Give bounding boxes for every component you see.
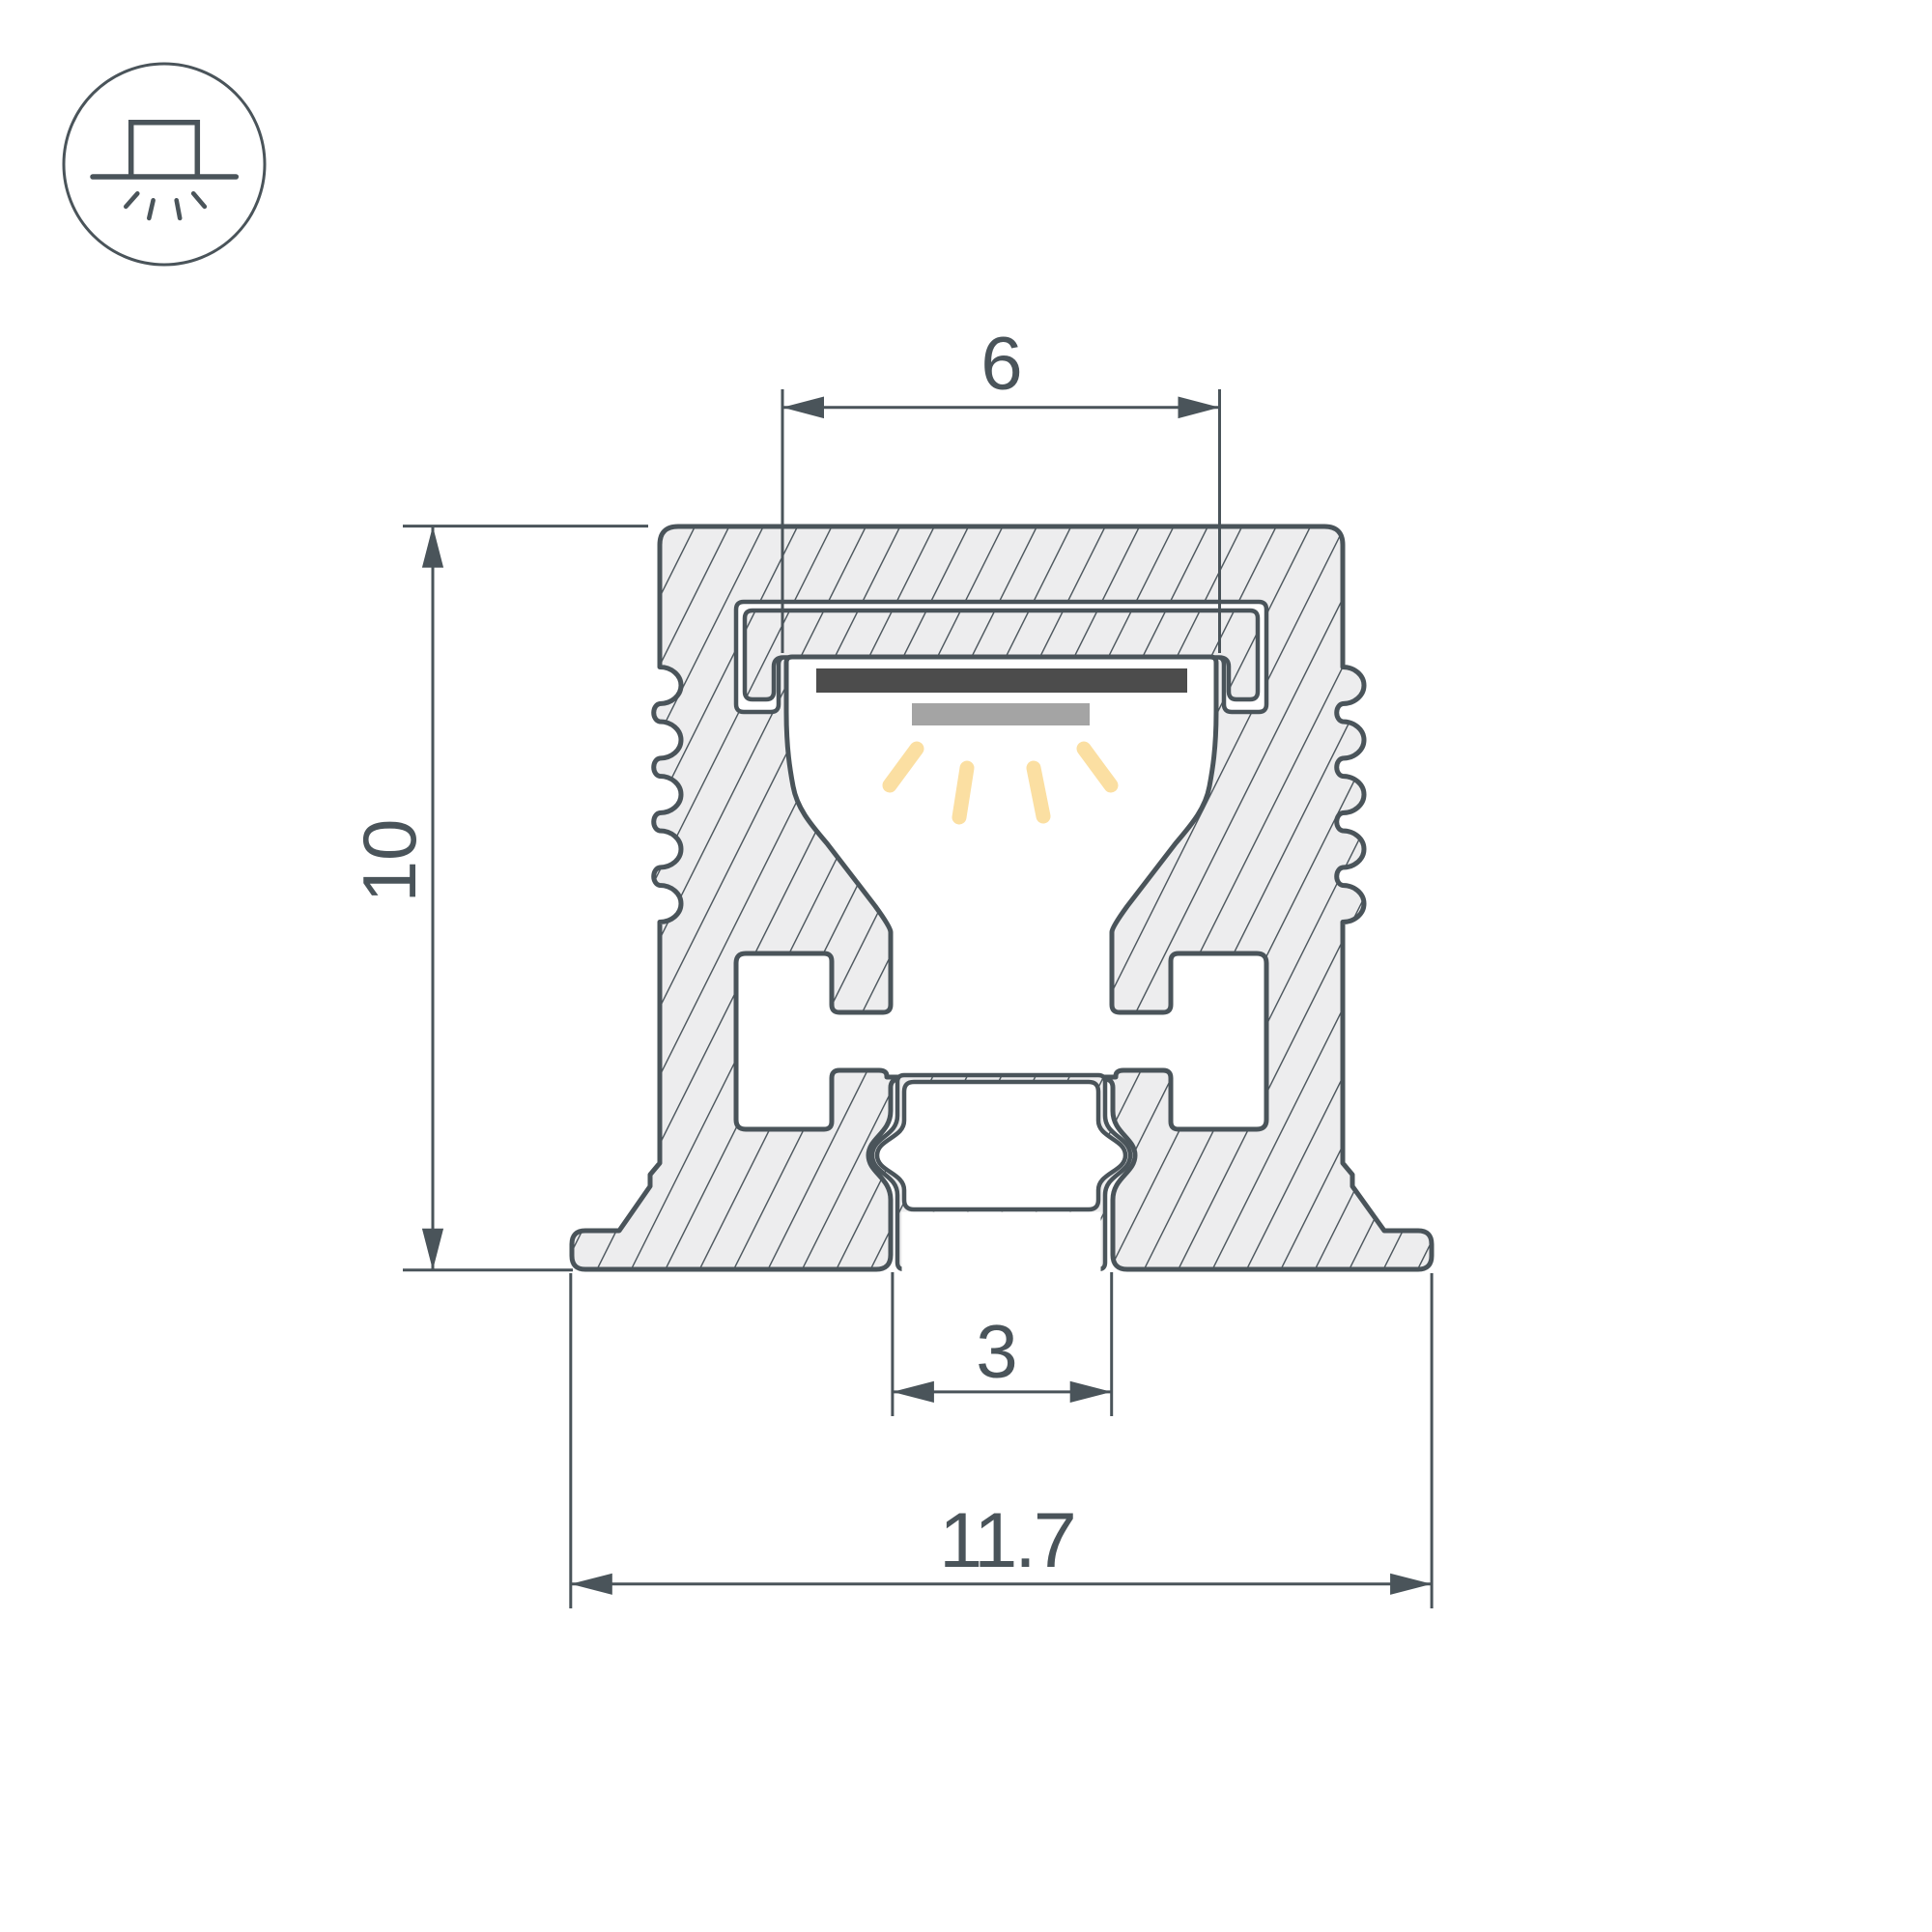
svg-text:10: 10 xyxy=(347,819,432,903)
svg-text:6: 6 xyxy=(980,321,1022,406)
svg-text:3: 3 xyxy=(976,1309,1017,1394)
svg-text:11.7: 11.7 xyxy=(939,1497,1074,1584)
